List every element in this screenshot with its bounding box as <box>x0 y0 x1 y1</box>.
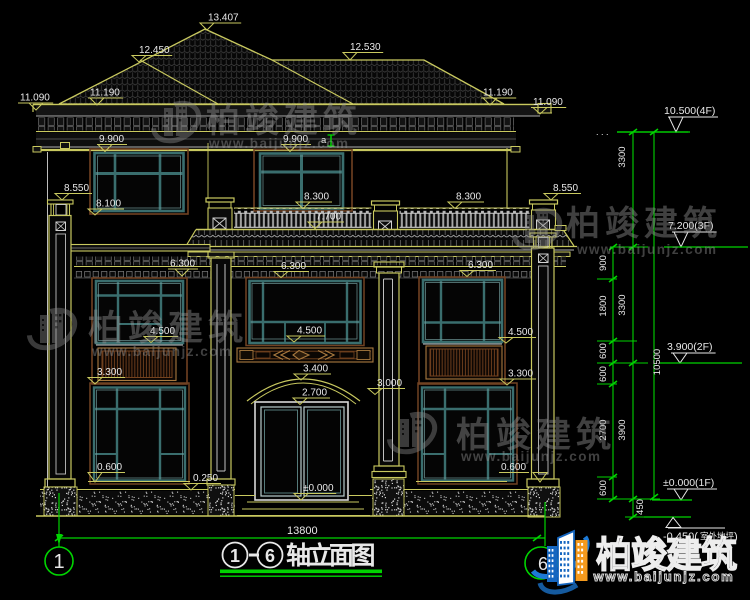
svg-text:www.baijunjz.com: www.baijunjz.com <box>208 136 350 151</box>
svg-text:10.500(4F): 10.500(4F) <box>664 105 715 117</box>
svg-text:12.530: 12.530 <box>350 42 381 53</box>
svg-text:900: 900 <box>598 255 609 271</box>
svg-text:1: 1 <box>53 551 64 573</box>
svg-text:8.550: 8.550 <box>64 183 89 194</box>
svg-text:0.600: 0.600 <box>97 462 122 473</box>
svg-text:6: 6 <box>265 546 275 566</box>
svg-text:4.500: 4.500 <box>297 326 322 337</box>
svg-text:11.190: 11.190 <box>90 88 120 99</box>
svg-text:±0.000: ±0.000 <box>303 483 334 494</box>
svg-text:600: 600 <box>598 366 609 382</box>
svg-text:6: 6 <box>538 554 548 574</box>
svg-text:600: 600 <box>598 343 609 359</box>
svg-text:7.700: 7.700 <box>316 212 341 223</box>
svg-text:600: 600 <box>598 480 609 496</box>
svg-text:8.550: 8.550 <box>553 183 578 194</box>
svg-text:3.900(2F): 3.900(2F) <box>667 341 713 353</box>
svg-text:柏竣建筑: 柏竣建筑 <box>88 308 248 348</box>
svg-text:www.baijunjz.com: www.baijunjz.com <box>460 449 602 464</box>
svg-text:www.baijunjz.com: www.baijunjz.com <box>91 344 233 359</box>
svg-text:柏竣建筑: 柏竣建筑 <box>566 204 722 243</box>
svg-text:0.250: 0.250 <box>193 473 218 484</box>
svg-text:9.900: 9.900 <box>99 134 124 145</box>
svg-text:13.407: 13.407 <box>208 13 239 24</box>
svg-text:11.090: 11.090 <box>533 97 563 108</box>
svg-text:±0.000(1F): ±0.000(1F) <box>663 477 714 489</box>
svg-text:10500: 10500 <box>652 349 663 375</box>
svg-text:8.100: 8.100 <box>96 199 121 210</box>
svg-text:6.300: 6.300 <box>468 260 493 271</box>
svg-text:www.baijunjz.com: www.baijunjz.com <box>593 569 735 584</box>
svg-text:2.700: 2.700 <box>302 388 327 399</box>
svg-text:12.450: 12.450 <box>139 45 170 56</box>
svg-text:柏竣建筑: 柏竣建筑 <box>206 101 362 140</box>
svg-text:3300: 3300 <box>617 294 628 315</box>
svg-text:4.500: 4.500 <box>508 327 533 338</box>
svg-text:8.300: 8.300 <box>456 192 481 203</box>
svg-text:3300: 3300 <box>617 146 628 167</box>
svg-text:. . .: . . . <box>596 127 609 137</box>
svg-text:13800: 13800 <box>287 525 318 537</box>
svg-text:1: 1 <box>230 546 240 566</box>
svg-text:3.400: 3.400 <box>303 364 328 375</box>
svg-text:8.300: 8.300 <box>304 192 329 203</box>
svg-text:11.090: 11.090 <box>20 93 50 104</box>
svg-text:3.000: 3.000 <box>377 378 402 389</box>
svg-text:3.300: 3.300 <box>97 367 122 378</box>
svg-text:轴立面图: 轴立面图 <box>286 541 375 570</box>
svg-text:www.baijunjz.com: www.baijunjz.com <box>576 242 718 257</box>
svg-text:1800: 1800 <box>598 295 609 316</box>
svg-text:6.300: 6.300 <box>281 261 306 272</box>
svg-text:3.300: 3.300 <box>508 369 533 380</box>
svg-text:450: 450 <box>635 499 646 515</box>
svg-text:11.190: 11.190 <box>483 88 513 99</box>
svg-text:6.300: 6.300 <box>170 259 195 270</box>
svg-text:3900: 3900 <box>617 419 628 440</box>
